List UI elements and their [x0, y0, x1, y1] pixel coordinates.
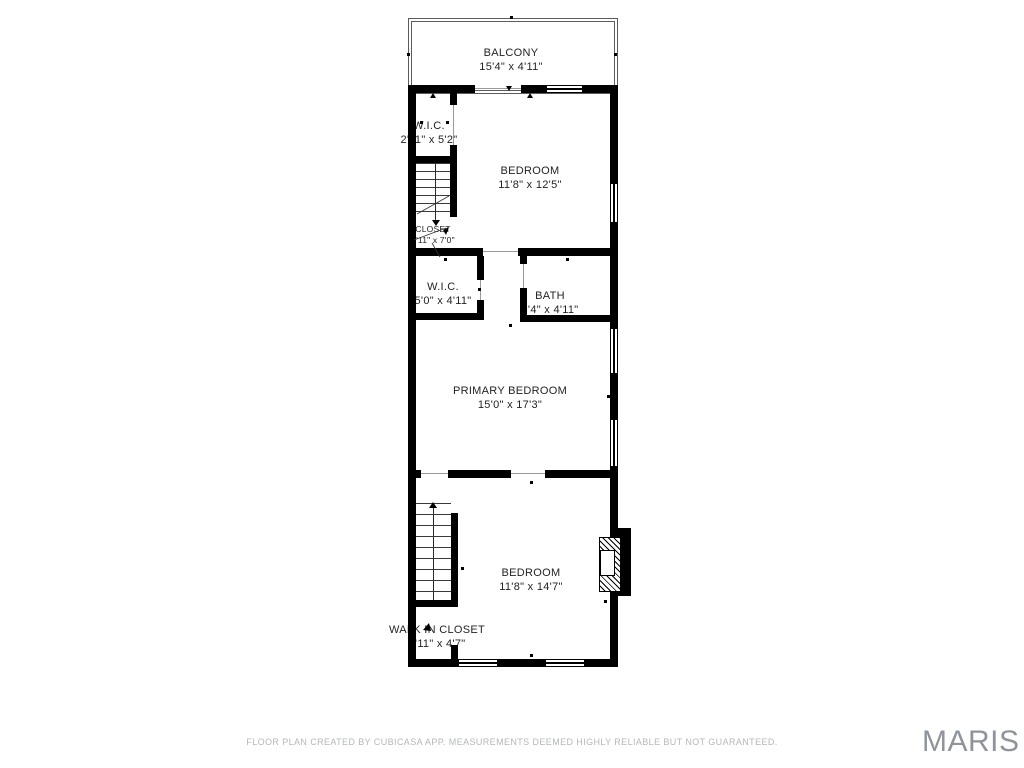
- wall-walk-in-closet-right: [451, 645, 458, 667]
- room-name: BEDROOM: [460, 164, 600, 178]
- tick-arrow-icon: [527, 93, 533, 98]
- room-dims: 11'8" x 14'7": [461, 580, 601, 594]
- tick-mark: [510, 16, 513, 19]
- tick-mark: [611, 158, 614, 161]
- wall-top-2: [521, 85, 546, 93]
- tick-mark: [478, 288, 481, 291]
- tick-mark: [412, 395, 415, 398]
- floor-plan-canvas: BALCONY 15'4" x 4'11" W.I.C. 2'11" x 5'2…: [0, 0, 1024, 768]
- wall-wic-middle-right-a: [477, 256, 484, 280]
- wall-left: [408, 85, 416, 667]
- wall-stairs-lower-bottom: [408, 600, 458, 607]
- tick-mark: [509, 324, 512, 327]
- tick-mark: [446, 121, 449, 124]
- room-name: PRIMARY BEDROOM: [430, 384, 590, 398]
- stairwell-opening: [421, 473, 448, 474]
- room-label-walk-in-closet: WALK IN CLOSET 2'11" x 4'7": [387, 623, 487, 651]
- disclaimer-text: FLOOR PLAN CREATED BY CUBICASA APP. MEAS…: [0, 737, 1024, 747]
- wall-hall-left: [408, 248, 483, 256]
- wall-mid-a: [408, 470, 421, 478]
- tick-mark: [607, 395, 610, 398]
- tick-mark: [530, 654, 533, 657]
- room-dims: 15'4" x 4'11": [411, 60, 611, 74]
- stairs-lower-arrow-icon: [429, 502, 437, 508]
- balcony-door-tick-icon: [506, 86, 512, 91]
- room-label-wic-upper: W.I.C. 2'11" x 5'2": [389, 119, 469, 147]
- room-dims: 2'11" x 7'0": [393, 235, 473, 246]
- wall-mid-b: [448, 470, 511, 478]
- stairs-upper: [416, 163, 450, 219]
- wic-upper-door-opening: [453, 105, 454, 145]
- room-name: W.I.C.: [389, 119, 469, 133]
- tick-mark: [566, 316, 569, 319]
- tick-mark: [412, 288, 415, 291]
- window-bedroom-upper-right: [610, 183, 618, 223]
- tick-arrow-icon: [430, 93, 436, 98]
- room-dims: 11'8" x 12'5": [460, 178, 600, 192]
- balcony-door-opening: [475, 88, 521, 89]
- wall-bath-left-a: [520, 256, 527, 264]
- room-dims: 2'11" x 5'2": [389, 133, 469, 147]
- wall-bath-bottom: [520, 315, 618, 322]
- wall-wic-upper-right-a: [450, 85, 457, 105]
- tick-mark: [524, 297, 527, 300]
- stairs-upper-arrow-icon: [432, 220, 440, 226]
- window-primary-right-2: [610, 419, 618, 467]
- tick-mark: [604, 600, 607, 603]
- room-dims: 2'11" x 4'7": [387, 637, 487, 651]
- room-name: BEDROOM: [461, 566, 601, 580]
- wall-wic-upper-bottom: [408, 156, 457, 163]
- bath-door-opening: [523, 264, 524, 288]
- room-name: WALK IN CLOSET: [387, 623, 487, 637]
- wall-stairs-upper-right: [450, 163, 457, 217]
- wall-top-1: [408, 85, 475, 93]
- window-primary-right-1: [610, 328, 618, 374]
- hall-opening: [483, 251, 518, 252]
- wall-stairs-lower-right: [451, 513, 458, 607]
- stairs-lower-direction-line: [433, 508, 434, 600]
- maris-logo: MARIS: [922, 725, 1020, 759]
- room-label-closet: CLOSET 2'11" x 7'0": [393, 224, 473, 246]
- window-top: [546, 85, 583, 93]
- tick-mark: [444, 258, 447, 261]
- wall-bottom-2: [498, 659, 545, 667]
- tick-mark: [461, 567, 464, 570]
- window-bottom-1: [458, 659, 498, 667]
- room-name: BALCONY: [411, 46, 611, 60]
- fireplace-firebox: [600, 550, 615, 576]
- tick-mark: [444, 314, 447, 317]
- tick-mark: [530, 481, 533, 484]
- tick-mark: [614, 53, 617, 56]
- wall-bottom-3: [585, 659, 618, 667]
- room-label-balcony: BALCONY 15'4" x 4'11": [411, 46, 611, 74]
- room-label-bedroom-upper: BEDROOM 11'8" x 12'5": [460, 164, 600, 192]
- stairs-upper-direction-line: [435, 164, 436, 220]
- tick-mark: [610, 297, 613, 300]
- window-bottom-2: [545, 659, 585, 667]
- bedroom-lower-door-opening: [511, 473, 545, 474]
- room-label-primary-bedroom: PRIMARY BEDROOM 15'0" x 17'3": [430, 384, 590, 412]
- room-label-bedroom-lower: BEDROOM 11'8" x 14'7": [461, 566, 601, 594]
- wall-mid-c: [545, 470, 618, 478]
- tick-mark: [566, 258, 569, 261]
- tick-mark: [407, 53, 410, 56]
- wall-hall-right: [518, 248, 618, 256]
- tick-mark: [420, 121, 423, 124]
- room-dims: 15'0" x 17'3": [430, 398, 590, 412]
